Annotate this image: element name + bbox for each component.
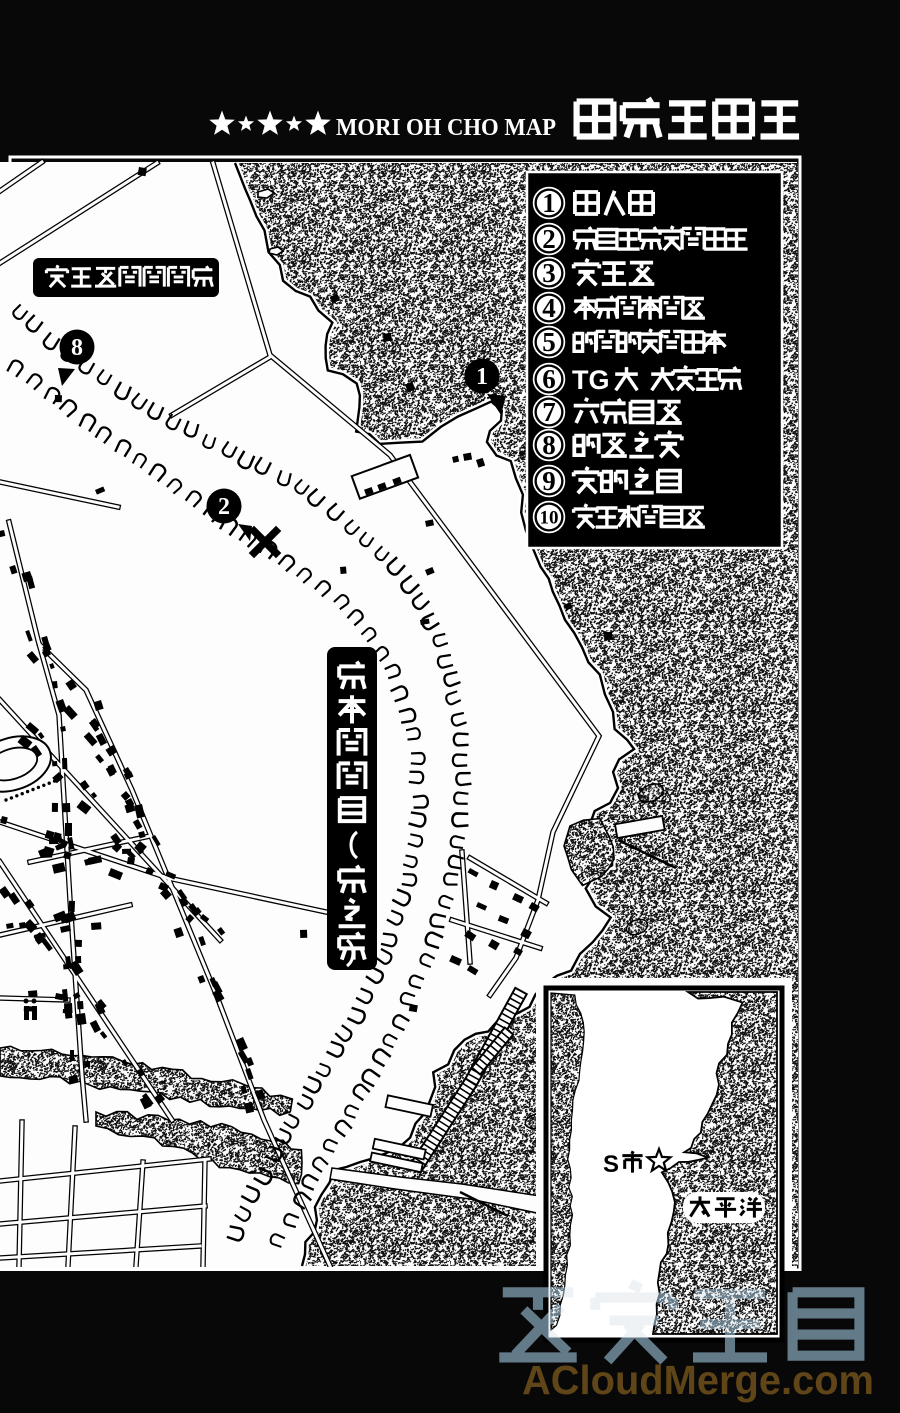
svg-text:1: 1: [542, 188, 556, 218]
svg-text:6: 6: [542, 364, 556, 394]
svg-text:7: 7: [542, 397, 556, 427]
svg-text:1: 1: [476, 364, 488, 390]
svg-text:MORI OH CHO MAP: MORI OH CHO MAP: [336, 115, 556, 141]
svg-text:10: 10: [540, 508, 559, 529]
svg-text:3: 3: [542, 258, 556, 288]
svg-text:ACloudMerge.com: ACloudMerge.com: [522, 1357, 874, 1403]
svg-text:5: 5: [542, 327, 556, 357]
svg-text:2: 2: [542, 224, 556, 254]
svg-text:9: 9: [542, 466, 556, 496]
svg-text:8: 8: [542, 430, 556, 460]
svg-text:2: 2: [218, 494, 230, 520]
svg-text:4: 4: [542, 293, 556, 323]
svg-text:8: 8: [71, 335, 83, 361]
svg-text:S: S: [603, 1151, 619, 1178]
svg-text:TG: TG: [572, 365, 610, 395]
